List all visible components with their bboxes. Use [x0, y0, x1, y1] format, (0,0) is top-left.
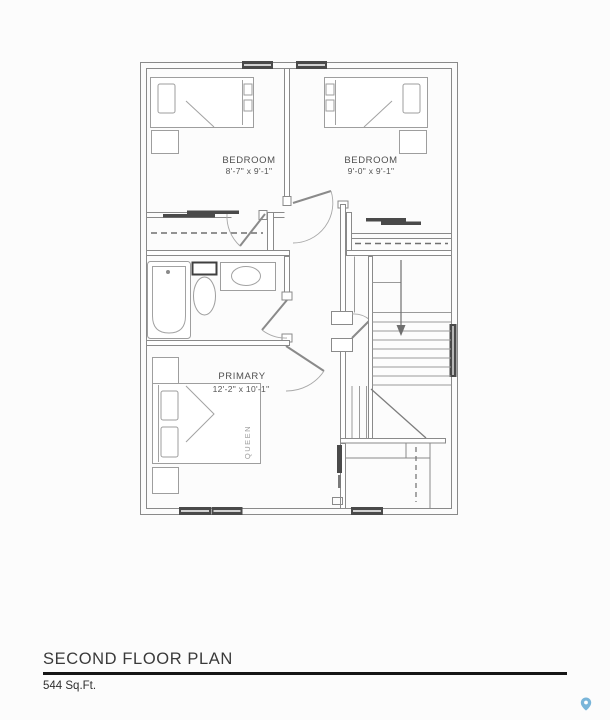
closet-right — [347, 213, 452, 256]
window-top-right — [296, 61, 327, 69]
vanity-sink — [221, 263, 276, 291]
window-top-left — [242, 61, 273, 69]
stairs-down-arrow — [397, 260, 406, 336]
primary-label: PRIMARY — [218, 371, 265, 382]
door-stairs — [352, 314, 370, 338]
under-stair-closet — [333, 439, 446, 509]
window-bottom-left-2 — [212, 507, 243, 515]
door-right-bedroom — [293, 191, 333, 243]
map-pin-hole — [584, 701, 588, 705]
bedroom-divider-wall — [283, 69, 291, 206]
window-bottom-right — [351, 507, 383, 515]
nightstand-left-bedroom — [152, 131, 179, 154]
title-block: SECOND FLOOR PLAN 544 Sq.Ft. — [43, 648, 567, 692]
nightstand-right-bedroom — [400, 131, 427, 154]
bed-single-left — [151, 78, 254, 128]
door-bathroom — [262, 300, 287, 338]
queen-bed-label: QUEEN — [243, 425, 252, 459]
bedroom-right-label: BEDROOM — [344, 155, 397, 166]
bed-single-right — [325, 78, 428, 128]
listing-photo-floor-plan: BEDROOM 8'-7" x 9'-1" BEDROOM 9'-0" x 9'… — [0, 0, 610, 720]
staircase — [352, 257, 451, 440]
bedroom-left-dimensions: 8'-7" x 9'-1" — [226, 166, 273, 176]
plan-area: 544 Sq.Ft. — [43, 680, 567, 692]
window-bottom-left-1 — [179, 507, 211, 515]
title-underline — [43, 672, 567, 675]
bedroom-left-label: BEDROOM — [222, 155, 275, 166]
nightstand-primary-top — [153, 358, 179, 384]
closet-left — [151, 211, 263, 234]
toilet — [193, 263, 217, 316]
bedroom-right-dimensions: 9'-0" x 9'-1" — [348, 166, 395, 176]
plan-title: SECOND FLOOR PLAN — [43, 648, 567, 670]
window-right-wall — [450, 324, 457, 377]
floor-plan: BEDROOM 8'-7" x 9'-1" BEDROOM 9'-0" x 9'… — [0, 0, 610, 720]
nightstand-primary-bottom — [153, 468, 179, 494]
map-pin-icon — [580, 697, 592, 711]
bathtub — [148, 262, 191, 339]
door-primary — [286, 346, 324, 391]
primary-dimensions: 12'-2" x 10'-1" — [213, 384, 270, 394]
